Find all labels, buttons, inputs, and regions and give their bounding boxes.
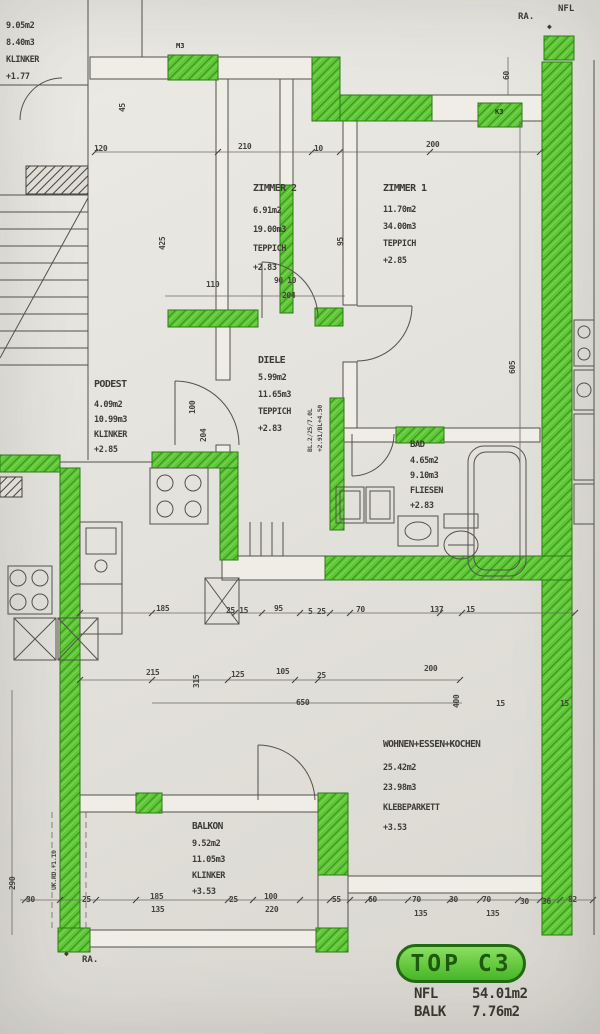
dimension-label: 200 bbox=[424, 664, 437, 673]
dimension-label: 45 bbox=[118, 103, 127, 112]
dimension-label: 95 bbox=[336, 237, 345, 246]
dimension-label: 204 bbox=[199, 429, 208, 442]
dimension-label: 105 bbox=[276, 667, 289, 676]
annotation-uk-rd: UK.RD.+1.10 bbox=[50, 850, 58, 890]
nfl-top-label: NFL bbox=[558, 4, 574, 14]
dimension-label: 70 bbox=[412, 895, 421, 904]
dimension-label: 90 10 bbox=[274, 276, 296, 285]
diamond-icon: ◆ bbox=[547, 22, 552, 31]
dimension-label: 55 bbox=[332, 895, 341, 904]
nfl-value: 54.01m2 bbox=[472, 986, 528, 1002]
dimension-label: 25 15 bbox=[226, 606, 248, 615]
dimension-label: 120 bbox=[94, 144, 107, 153]
room-label-zimmer1: ZIMMER 1 11.70m2 34.00m3 TEPPICH +2.85 bbox=[383, 184, 426, 270]
dimension-label: 135 bbox=[414, 909, 427, 918]
dimension-label: 650 bbox=[296, 698, 309, 707]
dimension-label: 204 bbox=[282, 291, 295, 300]
dimension-label: 25 bbox=[82, 895, 91, 904]
dimension-label: 30 bbox=[520, 897, 529, 906]
room-label-diele: DIELE 5.99m2 11.65m3 TEPPICH +2.83 bbox=[258, 356, 291, 438]
dimension-label: 400 bbox=[452, 695, 461, 708]
room-label-bad: BAD 4.65m2 9.10m3 FLIESEN +2.83 bbox=[410, 441, 443, 514]
nfl-label: NFL bbox=[414, 986, 472, 1002]
wall-tag-k3: K3 bbox=[495, 108, 503, 116]
room-label-balkon: BALKON 9.52m2 11.05m3 KLINKER +3.53 bbox=[192, 822, 225, 900]
dimension-label: 15 bbox=[560, 699, 569, 708]
dimension-label: 110 bbox=[206, 280, 219, 289]
neighbour-fixtures bbox=[574, 320, 594, 524]
dimension-label: 135 bbox=[151, 905, 164, 914]
dimension-label: 215 bbox=[146, 668, 159, 677]
dimension-label: 95 bbox=[274, 604, 283, 613]
dimension-label: 220 bbox=[265, 905, 278, 914]
dimension-label: 30 bbox=[449, 895, 458, 904]
dimension-label: 10 bbox=[314, 144, 323, 153]
dimension-label: 290 bbox=[8, 877, 17, 890]
diamond-icon: ◆ bbox=[64, 949, 69, 958]
dimension-label: 30 bbox=[26, 895, 35, 904]
balk-value: 7.76m2 bbox=[472, 1004, 520, 1020]
dimension-label: 135 bbox=[486, 909, 499, 918]
dimension-label: 70 bbox=[482, 895, 491, 904]
dimension-label: 185 bbox=[150, 892, 163, 901]
room-label-zimmer2: ZIMMER 2 6.91m2 19.00m3 TEPPICH +2.83 bbox=[253, 184, 296, 278]
dimension-label: 200 bbox=[426, 140, 439, 149]
dimension-label: 5 25 bbox=[308, 607, 326, 616]
room-label-wohnen: WOHNEN+ESSEN+KOCHEN 25.42m2 23.98m3 KLEB… bbox=[383, 740, 480, 838]
dimension-label: 125 bbox=[231, 670, 244, 679]
dimension-label: 36 bbox=[542, 897, 551, 906]
floorplan-canvas: RA. NFL ◆ RA. ◆ M3 K3 UK.RD.+1.10 BL.2/2… bbox=[0, 0, 600, 1034]
dimension-label: 100 bbox=[264, 892, 277, 901]
ra-bottom-label: RA. bbox=[82, 955, 98, 965]
dimension-ticks bbox=[22, 149, 596, 903]
room-label-podest: PODEST 4.09m2 10.99m3 KLINKER +2.85 bbox=[94, 380, 127, 458]
ra-top-label: RA. bbox=[518, 12, 534, 22]
dimension-label: 425 bbox=[158, 237, 167, 250]
dimension-label: 15 bbox=[496, 699, 505, 708]
dimension-label: 82 bbox=[568, 895, 577, 904]
nfl-row: NFL54.01m2 bbox=[414, 986, 528, 1002]
kitchen-fixtures bbox=[8, 468, 239, 660]
room-label-neighbor: 9.05m2 8.40m3 KLINKER +1.77 bbox=[6, 18, 39, 86]
dimension-label: 70 bbox=[356, 605, 365, 614]
dimension-label: 210 bbox=[238, 142, 251, 151]
dimension-label: 25 bbox=[229, 895, 238, 904]
wall-tag-m3: M3 bbox=[176, 42, 184, 50]
dimension-label: 100 bbox=[188, 401, 197, 414]
unit-badge: TOP C3 bbox=[396, 944, 526, 983]
balk-label: BALK bbox=[414, 1004, 472, 1020]
dimension-label: 137 bbox=[430, 605, 443, 614]
annotation-bl1: BL.2/25/7.0L bbox=[306, 409, 314, 452]
dimension-label: 60 bbox=[502, 71, 511, 80]
dimension-label: 60 bbox=[368, 895, 377, 904]
dimension-label: 15 bbox=[466, 605, 475, 614]
dimension-label: 315 bbox=[192, 675, 201, 688]
floorplan-drawing bbox=[0, 0, 600, 1034]
dimension-label: 25 bbox=[317, 671, 326, 680]
annotation-bl2: +2.91/BL+4.50 bbox=[316, 405, 324, 452]
dimension-label: 605 bbox=[508, 361, 517, 374]
balk-row: BALK7.76m2 bbox=[414, 1004, 520, 1020]
dimension-label: 185 bbox=[156, 604, 169, 613]
